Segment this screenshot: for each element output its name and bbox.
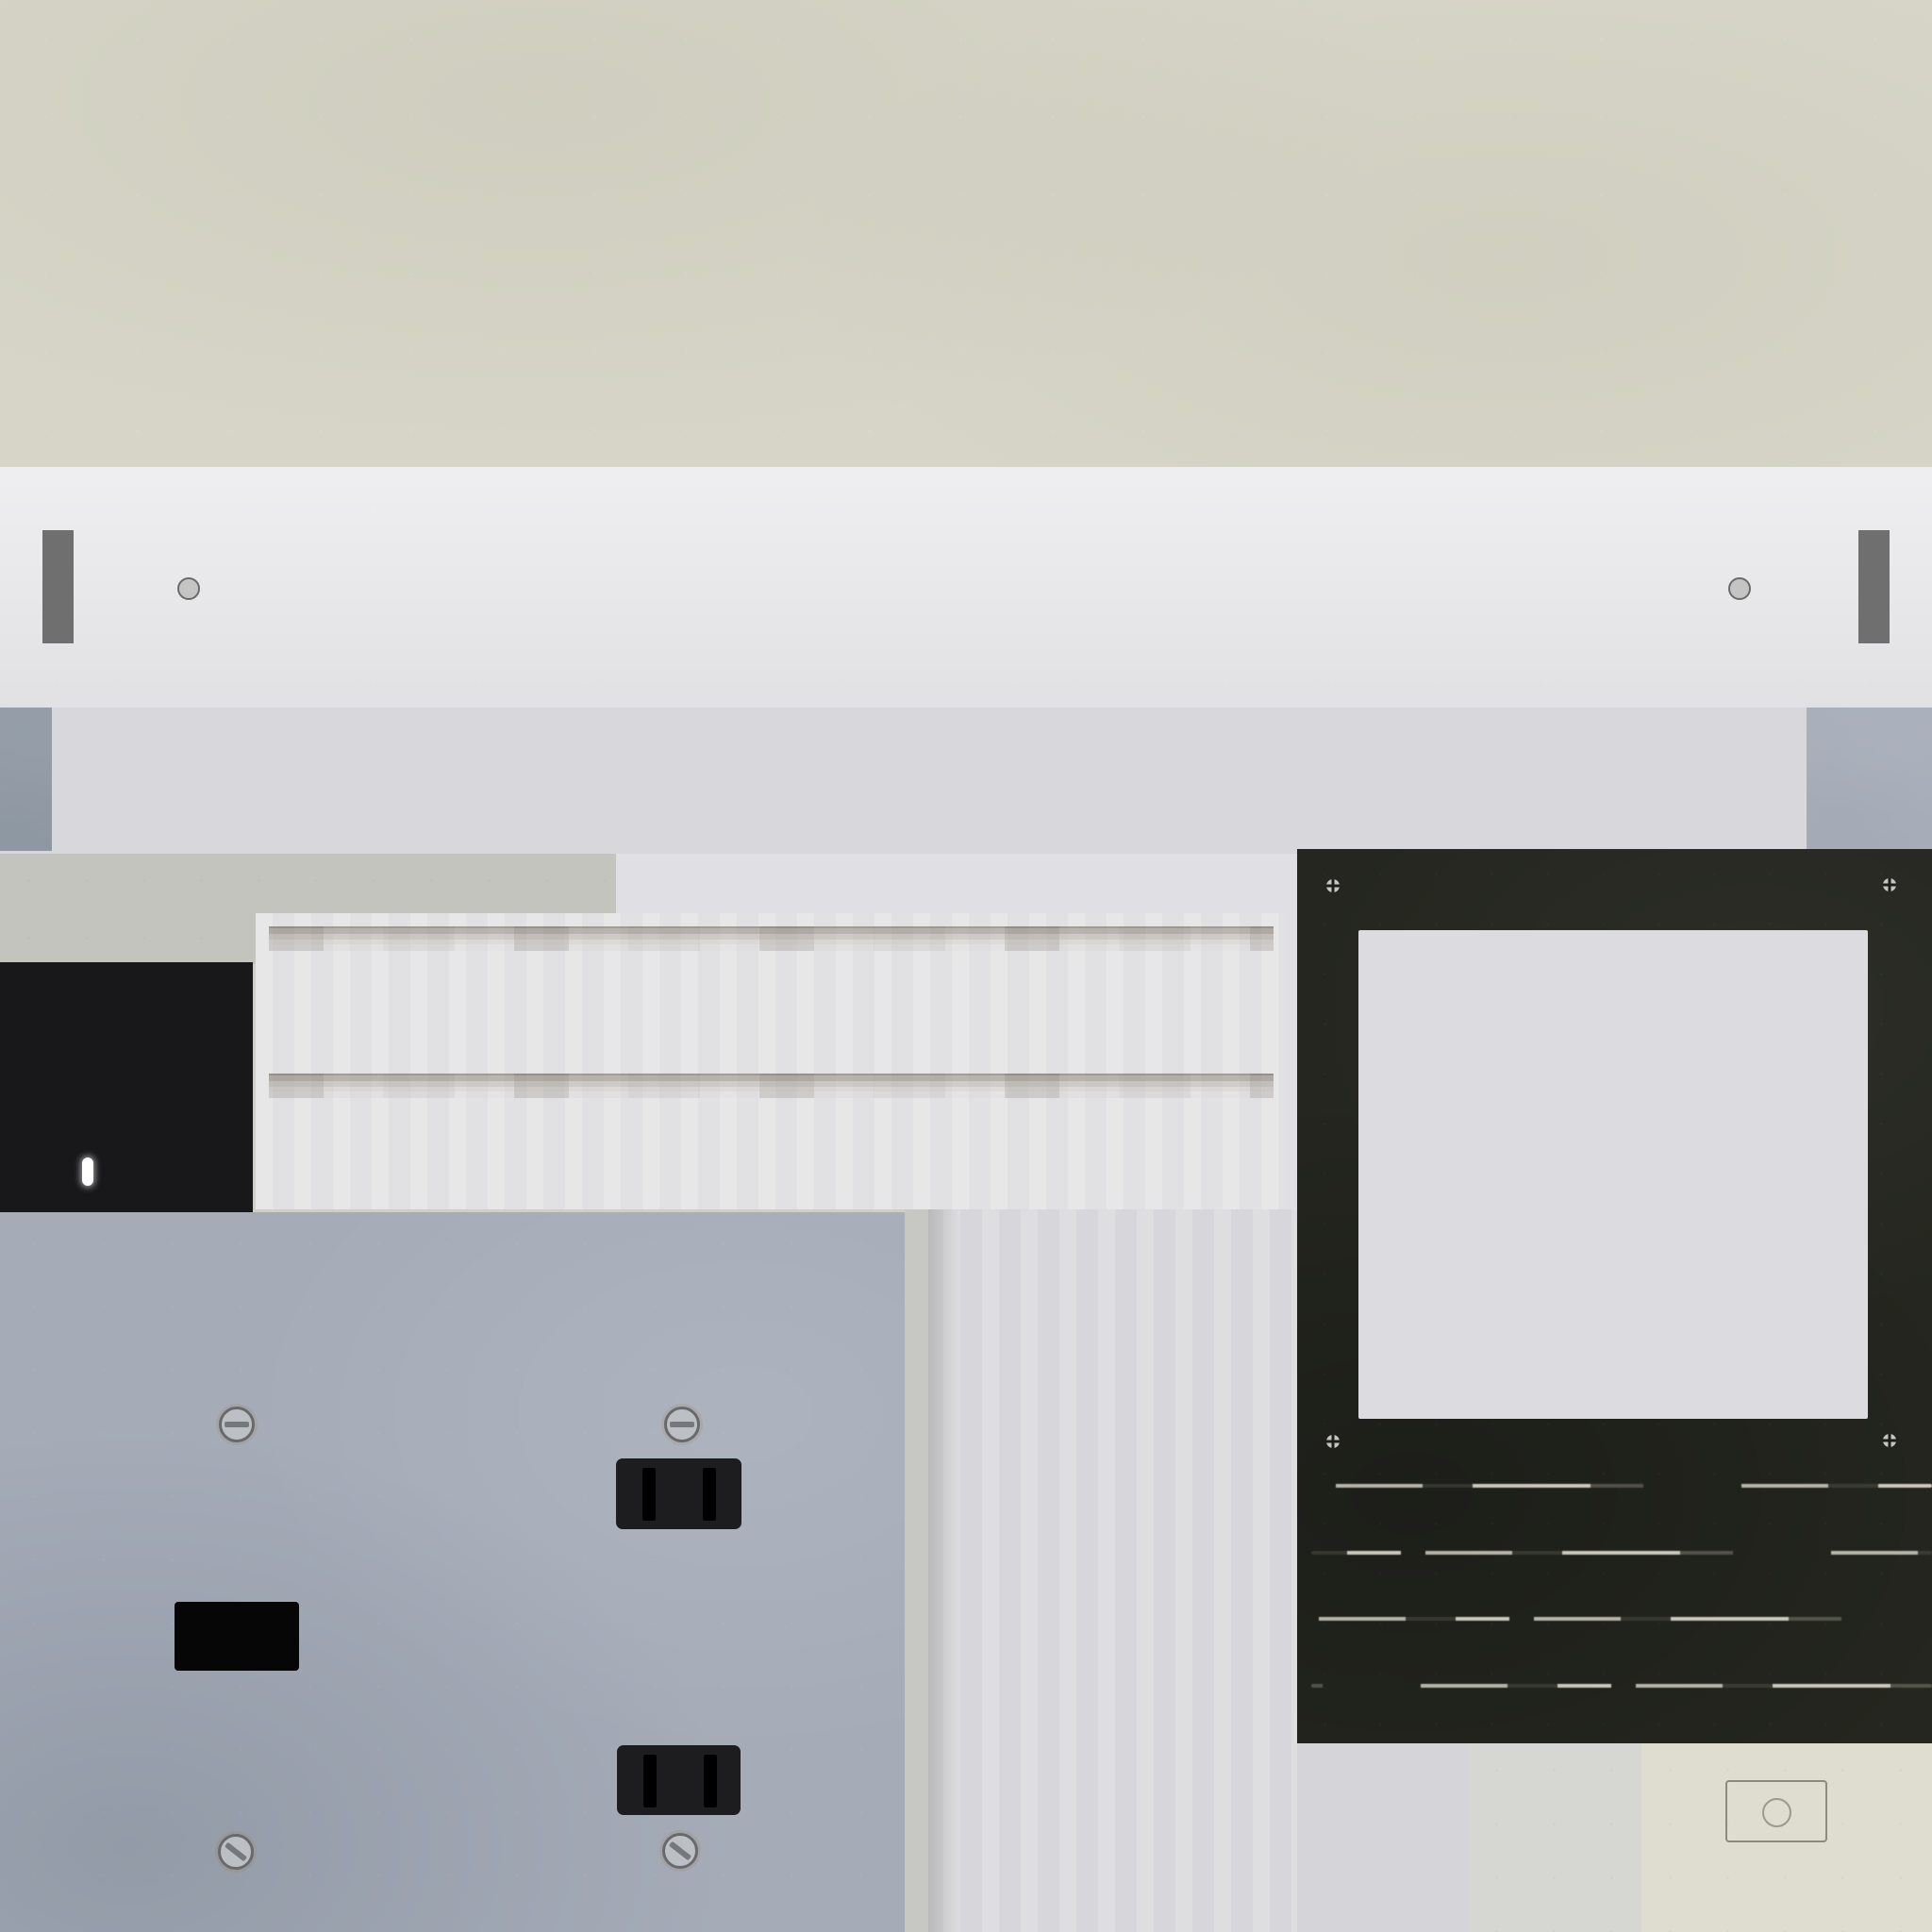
metal-plate-panel <box>0 1212 905 1932</box>
dark-display-panel <box>0 962 253 1213</box>
pillar-seam-fade <box>928 1209 960 1932</box>
screw-plate-tl <box>219 1407 255 1442</box>
drawer-groove-top <box>269 926 1274 951</box>
blank-insert <box>175 1602 299 1671</box>
screw-plate-tr <box>664 1407 700 1442</box>
drawer-panel <box>256 913 1286 1209</box>
shelf-end-right <box>1807 708 1932 851</box>
screw-slot-icon <box>225 1842 247 1862</box>
outlet-slot <box>704 1755 717 1807</box>
phillips-screw-tr <box>1883 878 1896 891</box>
chalk-line-2 <box>1311 1551 1932 1555</box>
counter-ledge-left <box>0 911 256 964</box>
outlet-slot <box>642 1468 656 1521</box>
pillar-column <box>905 1209 1297 1932</box>
shelf-face <box>0 708 1932 854</box>
white-beam <box>0 467 1932 708</box>
wall-upper <box>0 0 1932 467</box>
outlet-lower <box>617 1745 741 1815</box>
screw-plate-bl <box>218 1834 254 1870</box>
drawer-groove-bottom <box>269 1074 1274 1098</box>
floor-strip-left <box>1297 1743 1468 1932</box>
screw-slot-icon <box>669 1841 691 1861</box>
wall-slot-left <box>42 530 74 643</box>
screw-plate-br <box>662 1833 698 1869</box>
paper-sheet <box>1358 930 1868 1419</box>
outline-circle <box>1762 1798 1791 1827</box>
chalk-line-3 <box>1311 1617 1932 1621</box>
peg-hole-left <box>177 577 200 600</box>
wall-slot-right <box>1858 530 1890 643</box>
phillips-screw-bl <box>1326 1435 1340 1448</box>
outlet-slot <box>703 1468 716 1521</box>
outlet-upper <box>616 1458 741 1529</box>
screw-slot-icon <box>225 1422 249 1427</box>
floor-strip-middle <box>1468 1743 1641 1932</box>
chalk-line-4 <box>1311 1684 1932 1688</box>
chalk-line-1 <box>1311 1484 1932 1488</box>
phillips-screw-br <box>1883 1434 1896 1447</box>
peg-hole-right <box>1728 577 1751 600</box>
pillar-seam <box>905 1209 928 1932</box>
screw-slot-icon <box>670 1422 694 1427</box>
outlet-slot <box>643 1755 657 1807</box>
shelf-end-left <box>0 708 52 851</box>
counter-ledge <box>0 854 616 913</box>
phillips-screw-tl <box>1326 879 1340 892</box>
scene <box>0 0 1932 1932</box>
indicator-light <box>82 1158 93 1186</box>
